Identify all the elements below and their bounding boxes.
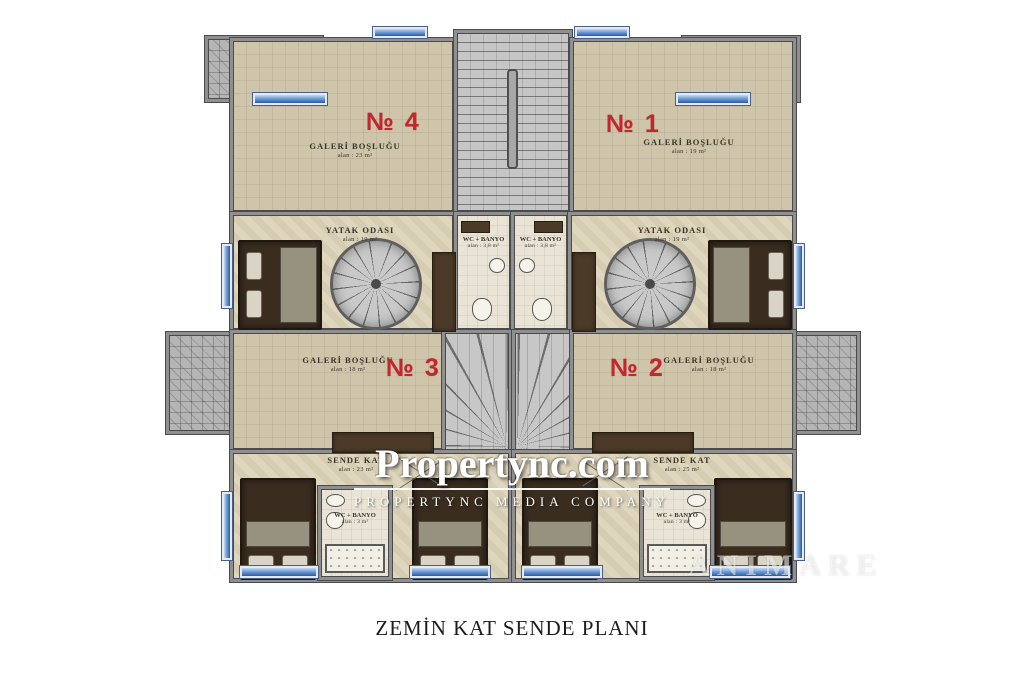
room-label-wc-mid-left: WC + BANYO alan : 3,8 m² <box>455 236 512 250</box>
room-name: YATAK ODASI <box>300 226 420 236</box>
main-staircase <box>454 30 572 214</box>
toilet-icon <box>472 298 492 321</box>
room-label-wc-mid-right: WC + BANYO alan : 3,8 m² <box>512 236 569 250</box>
window-icon <box>222 492 232 560</box>
balcony-mid-left <box>166 332 234 434</box>
blanket-icon <box>418 521 483 546</box>
room-name: WC + BANYO <box>512 236 569 243</box>
wardrobe-icon <box>572 252 596 332</box>
stair-railing <box>507 69 518 169</box>
unit-number-3: № 3 <box>386 354 441 383</box>
room-wc-mid-right <box>511 212 570 332</box>
blanket-icon <box>528 521 593 546</box>
room-label-yatak-left: YATAK ODASI alan : 19 m² <box>300 226 420 243</box>
room-name: GALERİ BOŞLUĞU <box>288 142 422 152</box>
room-label-wc-bottom-left: WC + BANYO alan : 3 m² <box>318 512 392 526</box>
room-area: alan : 3 m² <box>318 519 392 525</box>
watermark: Propertync.com PROPERTYNC MEDIA COMPANY <box>354 444 670 510</box>
room-name: WC + BANYO <box>318 512 392 519</box>
unit-number-2: № 2 <box>610 354 665 383</box>
blanket-icon <box>280 247 317 323</box>
room-area: alan : 3,8 m² <box>512 243 569 249</box>
room-label-wc-bottom-right: WC + BANYO alan : 3 m² <box>640 512 714 526</box>
room-area: alan : 19 m² <box>622 148 756 155</box>
window-icon <box>794 244 804 308</box>
window-icon <box>676 93 750 105</box>
window-icon <box>575 27 629 38</box>
watermark-brand: Propertync.com <box>354 444 670 484</box>
blanket-icon <box>713 247 750 323</box>
pillow-icon <box>246 290 262 318</box>
window-icon <box>240 566 318 578</box>
room-area: alan : 19 m² <box>300 236 420 243</box>
watermark-corner: ANIMARE <box>688 549 884 583</box>
window-icon <box>410 566 490 578</box>
wardrobe-icon <box>432 252 456 332</box>
room-area: alan : 3 m² <box>640 519 714 525</box>
sink-icon <box>326 494 345 507</box>
room-label-yatak-right: YATAK ODASI alan : 19 m² <box>612 226 732 243</box>
sink-icon <box>687 494 706 507</box>
double-bed-icon <box>238 240 322 330</box>
room-name: GALERİ BOŞLUĞU <box>622 138 756 148</box>
spiral-staircase-left <box>330 238 422 330</box>
vanity-icon <box>461 221 490 234</box>
double-bed-icon <box>240 478 316 580</box>
winder-staircase-left <box>442 330 512 454</box>
room-galeri-4 <box>230 38 456 214</box>
double-bed-icon <box>708 240 792 330</box>
unit-number-1: № 1 <box>606 110 661 139</box>
room-label-galeri-4: GALERİ BOŞLUĞU alan : 23 m² <box>288 142 422 159</box>
vanity-icon <box>534 221 563 234</box>
room-label-galeri-1: GALERİ BOŞLUĞU alan : 19 m² <box>622 138 756 155</box>
window-icon <box>253 93 327 105</box>
watermark-tagline: PROPERTYNC MEDIA COMPANY <box>354 488 670 510</box>
room-area: alan : 19 m² <box>612 236 732 243</box>
room-name: WC + BANYO <box>640 512 714 519</box>
shower-icon <box>325 544 385 572</box>
room-wc-mid-left <box>454 212 513 332</box>
room-area: alan : 3,8 m² <box>455 243 512 249</box>
window-icon <box>522 566 602 578</box>
sink-icon <box>519 258 535 273</box>
floor-plan-page: № 4 № 1 № 3 № 2 GALERİ BOŞLUĞU alan : 23… <box>0 0 1024 684</box>
spiral-staircase-right <box>604 238 696 330</box>
pillow-icon <box>768 252 784 280</box>
pillow-icon <box>768 290 784 318</box>
room-galeri-1 <box>570 38 796 214</box>
room-name: YATAK ODASI <box>612 226 732 236</box>
room-name: WC + BANYO <box>455 236 512 243</box>
pillow-icon <box>246 252 262 280</box>
plan-caption: ZEMİN KAT SENDE PLANI <box>0 616 1024 641</box>
room-area: alan : 23 m² <box>288 152 422 159</box>
unit-number-4: № 4 <box>366 108 421 137</box>
blanket-icon <box>720 521 787 546</box>
blanket-icon <box>246 521 311 546</box>
window-icon <box>373 27 427 38</box>
balcony-mid-right <box>792 332 860 434</box>
toilet-icon <box>532 298 552 321</box>
window-icon <box>222 244 232 308</box>
sink-icon <box>489 258 505 273</box>
